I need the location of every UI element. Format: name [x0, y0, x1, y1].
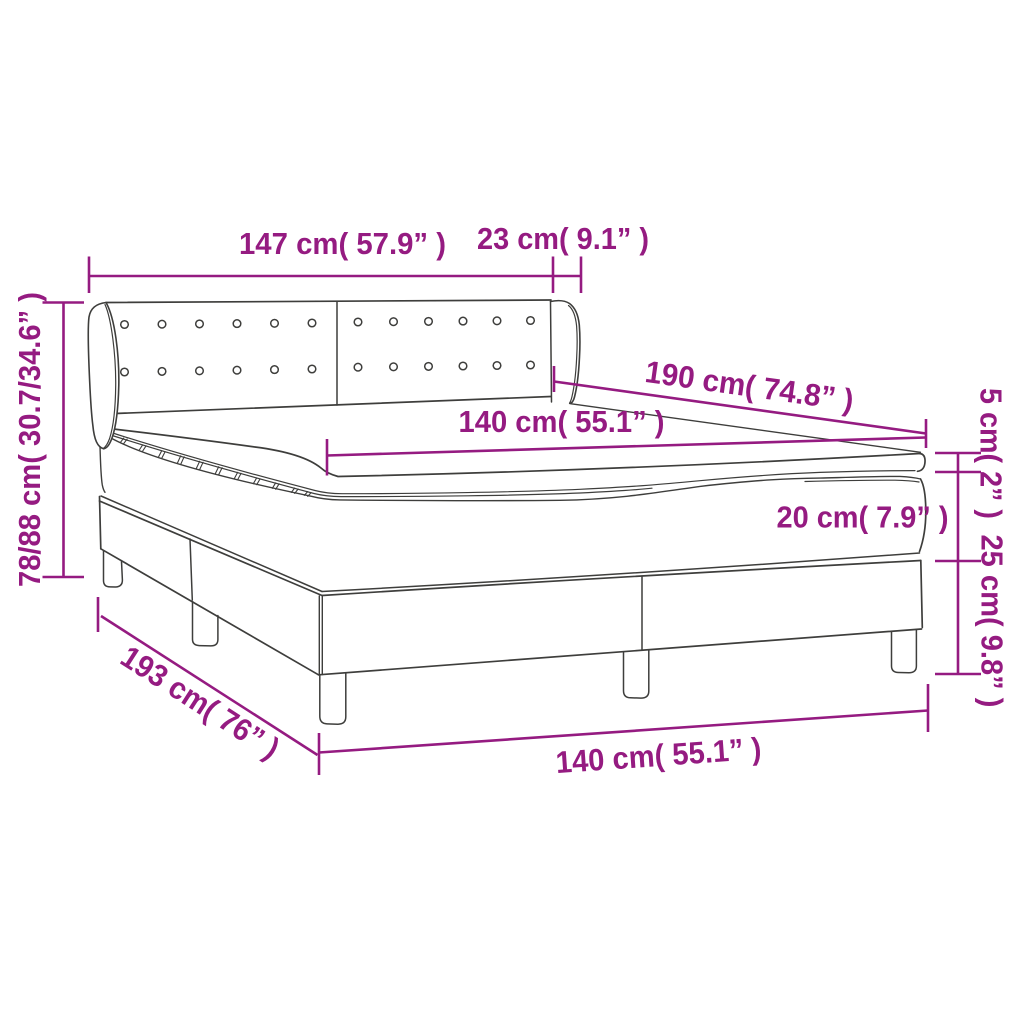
- svg-text:25 cm( 9.8” ): 25 cm( 9.8” ): [975, 535, 1010, 708]
- svg-text:23 cm( 9.1” ): 23 cm( 9.1” ): [477, 221, 649, 256]
- svg-text:5 cm( 2” ): 5 cm( 2” ): [974, 388, 1009, 519]
- svg-text:147 cm( 57.9” ): 147 cm( 57.9” ): [239, 226, 446, 261]
- svg-text:78/88 cm( 30.7/34.6” ): 78/88 cm( 30.7/34.6” ): [12, 292, 47, 587]
- svg-text:140 cm( 55.1” ): 140 cm( 55.1” ): [459, 404, 665, 439]
- svg-text:20 cm( 7.9” ): 20 cm( 7.9” ): [777, 500, 949, 535]
